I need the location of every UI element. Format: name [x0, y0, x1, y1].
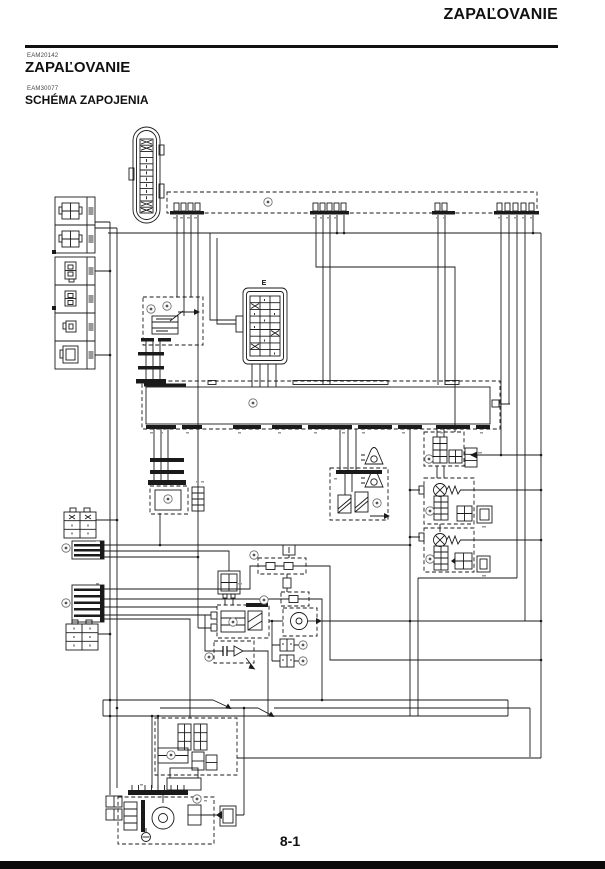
ecu-pin-combs: [146, 425, 490, 429]
callout-marker: [426, 555, 434, 563]
wiring-diagram: E: [0, 0, 605, 869]
junction-dots: [109, 232, 543, 718]
callout-marker: [163, 302, 171, 310]
callout-marker: [425, 455, 433, 463]
fuse-icon: [283, 578, 291, 588]
ignition-coil-unit: [330, 468, 388, 520]
connector-labels: [89, 207, 94, 359]
callout-marker: [249, 399, 257, 407]
wire-harness: [95, 215, 542, 832]
callout-marker: [62, 599, 70, 607]
comb-connector: [72, 541, 104, 559]
callout-marker: [373, 499, 381, 507]
callout-marker: [299, 657, 307, 665]
fuse-icon: [266, 563, 275, 570]
comb-connector: [494, 203, 539, 215]
top-bus-unit: [167, 192, 539, 215]
spark-plugs: [361, 448, 383, 488]
callout-marker: [229, 618, 237, 626]
motor-unit: [283, 608, 317, 636]
callout-marker: [167, 751, 175, 759]
callout-marker: [62, 544, 70, 552]
left-connectors: [64, 508, 104, 650]
comb-connector: [72, 585, 104, 622]
callout-marker: [260, 596, 268, 604]
connector-cell-icons: [59, 203, 82, 363]
callout-marker: [193, 795, 201, 803]
connector-e: E: [236, 280, 287, 364]
comb-connector: [170, 203, 204, 215]
ecu-unit: [142, 381, 500, 430]
manual-page: ZAPAĽOVANIE EAM20142 ZAPAĽOVANIE EAM3007…: [0, 0, 605, 869]
comb-connector: [432, 203, 455, 215]
capacitor-unit: [214, 641, 254, 663]
callout-marker: [264, 198, 272, 206]
starter-motor-cluster: [106, 718, 237, 844]
pill-connector: [129, 127, 164, 223]
connector-e-label: E: [262, 280, 267, 287]
indicator-lamp-unit-1: [419, 478, 492, 524]
coil-block-left: [148, 458, 204, 514]
starter-relay-unit: [211, 603, 269, 638]
page-number: 8-1: [255, 833, 325, 849]
pilot-connectors: [280, 639, 294, 667]
callout-marker: [164, 495, 172, 503]
indicator-lamp-unit-2: [419, 528, 490, 572]
callout-marker: [147, 305, 155, 313]
callout-marker: [299, 641, 307, 649]
fuse-icon: [289, 596, 298, 603]
fuse-icon: [284, 563, 293, 570]
callout-marker: [250, 551, 258, 559]
page-bottom-bar: [0, 861, 605, 869]
connector-panel: [52, 197, 95, 369]
callout-markers: [62, 198, 434, 803]
callout-marker: [205, 653, 213, 661]
comb-connector: [310, 203, 349, 215]
callout-marker: [426, 507, 434, 515]
wire-code-ticks: [96, 217, 533, 802]
